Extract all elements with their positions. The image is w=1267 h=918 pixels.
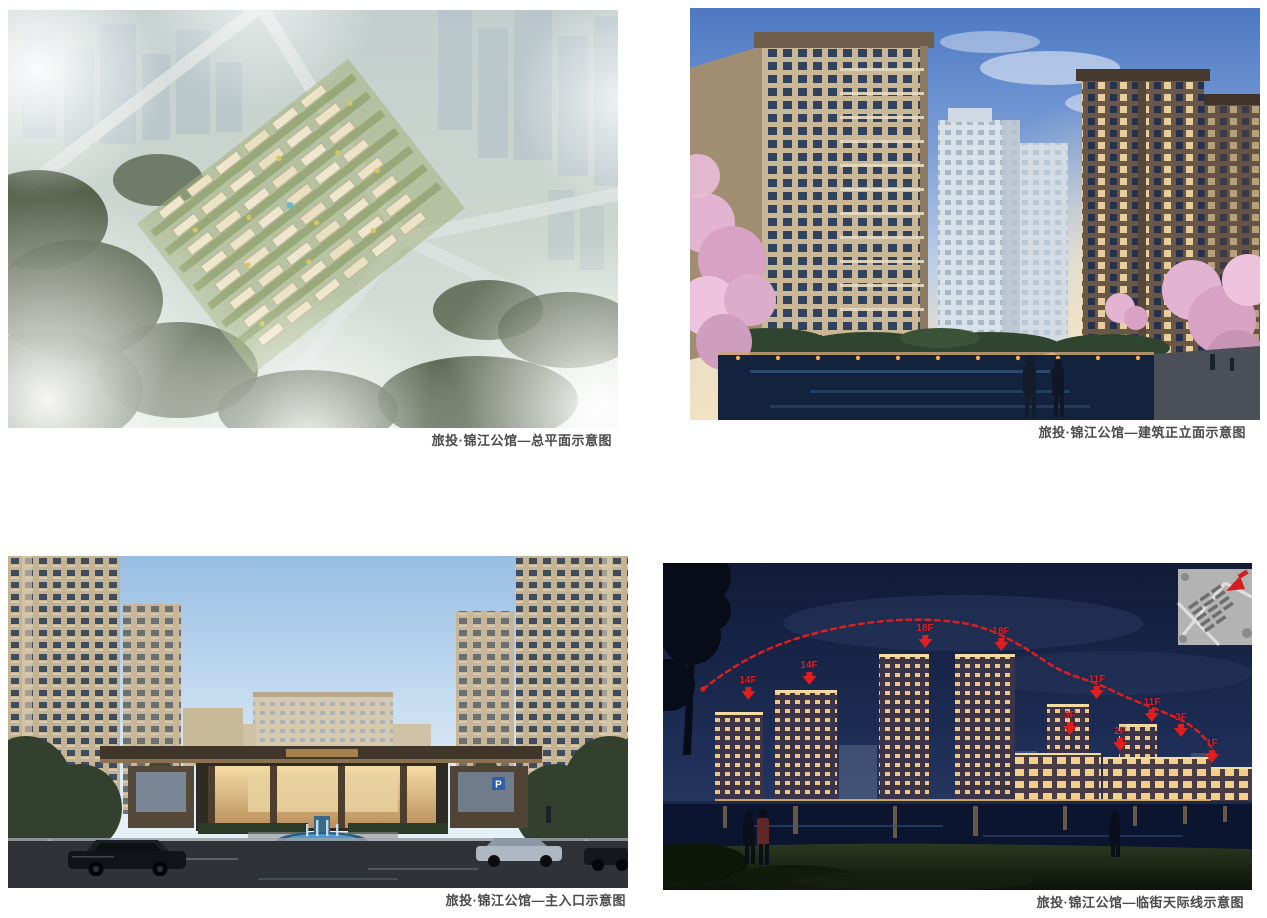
figure-skyline: 14F 14F 18F 18F 11F 3F 11F 2F 3F 1F 旅投·锦… xyxy=(663,563,1252,910)
figure-entrance: P xyxy=(8,556,628,908)
skyline-rendering xyxy=(663,563,1252,890)
inset-site-map xyxy=(1178,569,1252,645)
white-tower xyxy=(938,108,1068,353)
pedestrian-silhouette xyxy=(546,806,551,823)
entrance-rendering: P xyxy=(8,556,628,888)
figure-elevation: 旅投·锦江公馆—建筑正立面示意图 xyxy=(690,8,1260,440)
parking-sign-letter: P xyxy=(495,780,502,791)
site-plan-caption: 旅投·锦江公馆—总平面示意图 xyxy=(8,433,618,448)
entrance-image: P xyxy=(8,556,628,888)
elevation-image xyxy=(690,8,1260,420)
parking-sign: P xyxy=(492,777,505,791)
entrance-caption: 旅投·锦江公馆—主入口示意图 xyxy=(8,893,628,908)
site-plan-rendering xyxy=(8,10,618,428)
skyline-caption: 旅投·锦江公馆—临街天际线示意图 xyxy=(663,895,1252,910)
reflecting-pool xyxy=(718,352,1154,420)
elevation-caption: 旅投·锦江公馆—建筑正立面示意图 xyxy=(690,425,1260,440)
skyline-image: 14F 14F 18F 18F 11F 3F 11F 2F 3F 1F xyxy=(663,563,1252,890)
gate-name-board xyxy=(286,749,358,757)
walkway xyxy=(1154,346,1260,420)
elevation-rendering xyxy=(690,8,1260,420)
site-plan-image xyxy=(8,10,618,428)
figure-site-plan: 旅投·锦江公馆—总平面示意图 xyxy=(8,10,618,448)
